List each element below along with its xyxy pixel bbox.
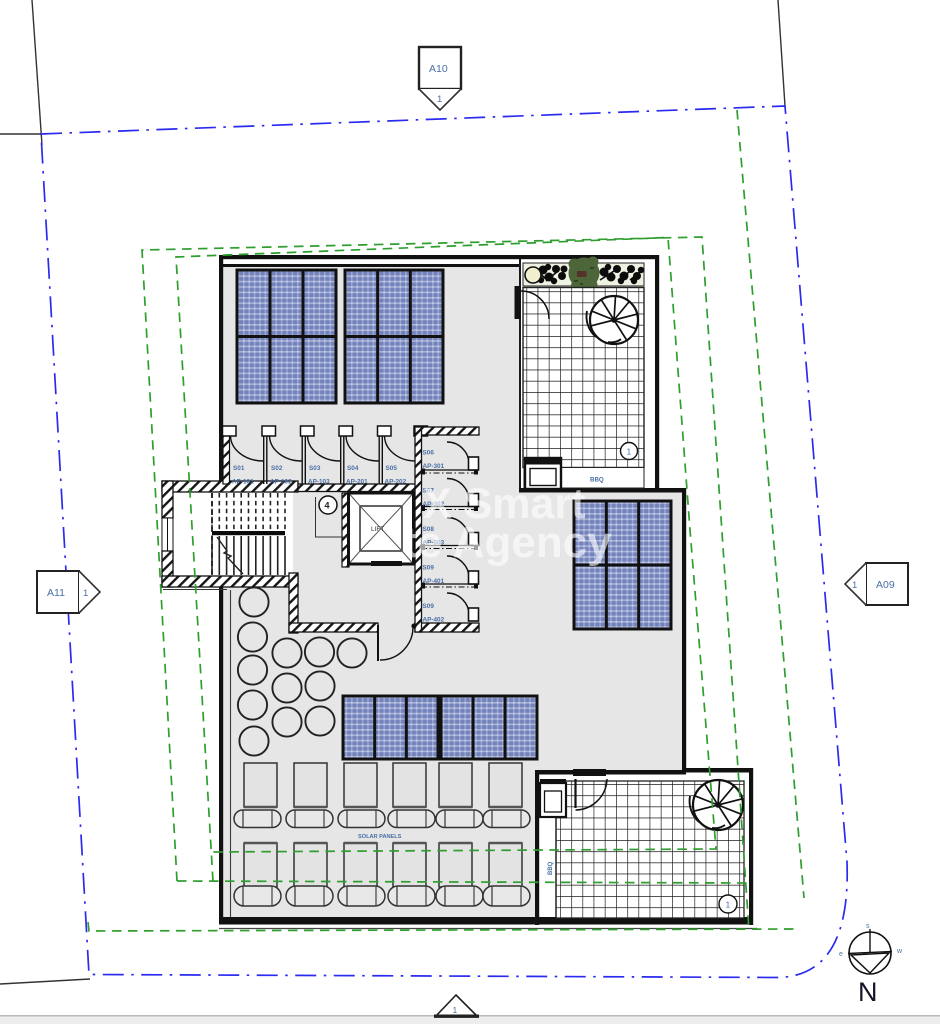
svg-text:S01: S01 [233,465,245,472]
svg-text:1: 1 [627,447,632,457]
svg-text:AP-102: AP-102 [270,479,292,486]
svg-text:A09: A09 [876,579,895,591]
svg-text:te Agency: te Agency [403,518,612,567]
svg-text:BBQ: BBQ [548,861,554,875]
svg-text:S05: S05 [386,465,398,472]
svg-text:LIFT: LIFT [371,526,384,533]
svg-text:1: 1 [453,1005,458,1015]
svg-text:AP-101: AP-101 [232,479,254,486]
svg-text:S06: S06 [423,450,435,457]
svg-text:AP-402: AP-402 [423,617,445,624]
svg-text:s: s [866,923,870,930]
svg-text:e: e [839,951,843,958]
svg-text:4: 4 [325,501,330,511]
svg-text:AP-301: AP-301 [423,463,445,470]
svg-text:SOLAR PANELS: SOLAR PANELS [358,834,402,840]
svg-text:A10: A10 [429,63,448,75]
svg-text:A11: A11 [47,587,65,599]
svg-text:AP-401: AP-401 [423,578,445,585]
svg-text:1: 1 [852,580,857,591]
svg-text:S09: S09 [423,603,435,610]
svg-text:w: w [896,948,903,955]
svg-text:BBQ: BBQ [590,477,604,484]
svg-text:1: 1 [726,900,731,910]
svg-text:S02: S02 [271,465,283,472]
svg-text:N: N [858,977,878,1007]
svg-text:1: 1 [83,588,88,599]
svg-text:1: 1 [437,94,442,105]
svg-text:S03: S03 [309,465,321,472]
svg-text:S04: S04 [347,465,359,472]
